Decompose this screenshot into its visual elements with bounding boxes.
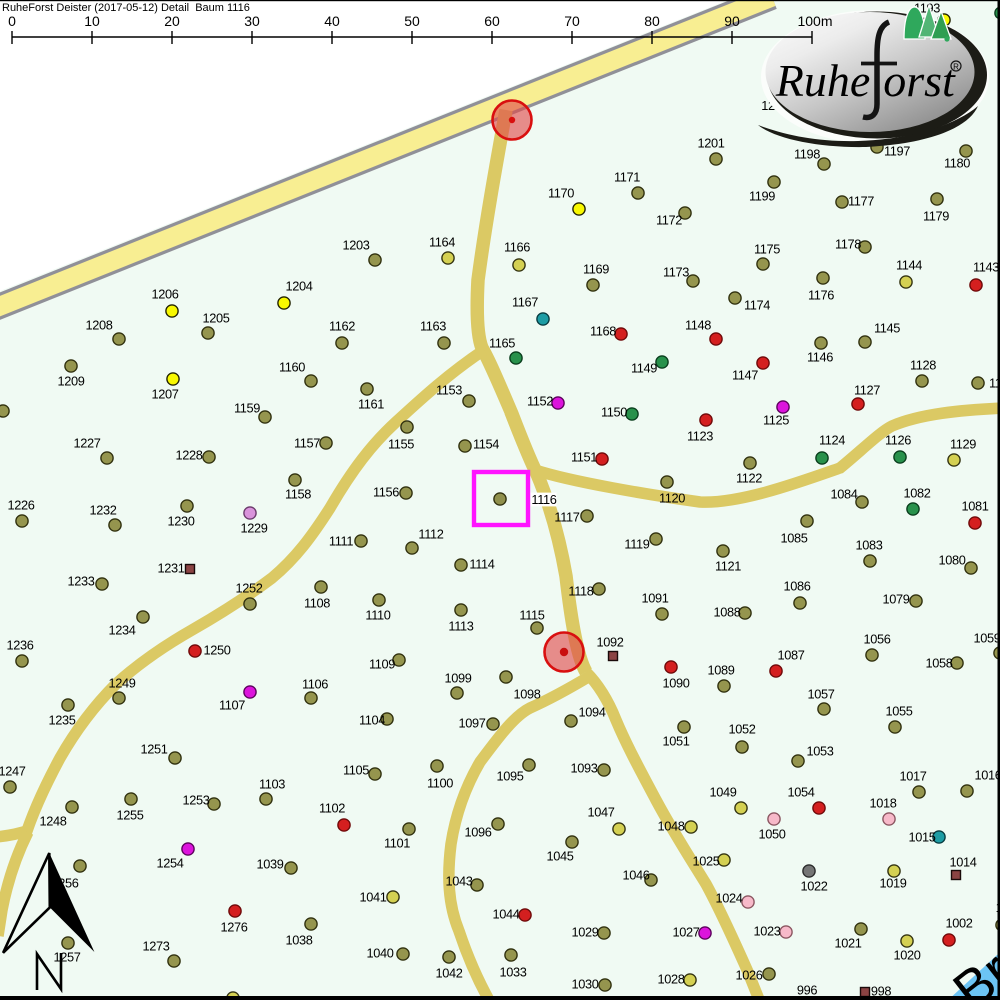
svg-text:1088: 1088	[713, 605, 740, 620]
svg-text:1180: 1180	[944, 156, 970, 171]
svg-text:1226: 1226	[7, 498, 34, 513]
svg-text:1146: 1146	[807, 350, 833, 365]
svg-text:1042: 1042	[435, 966, 462, 981]
svg-text:1055: 1055	[885, 704, 912, 719]
svg-text:1030: 1030	[571, 977, 598, 992]
svg-text:1018: 1018	[869, 796, 896, 811]
svg-text:1028: 1028	[657, 972, 684, 987]
svg-text:1155: 1155	[388, 437, 414, 452]
svg-text:1173: 1173	[663, 265, 689, 280]
svg-text:1097: 1097	[458, 716, 485, 731]
svg-text:30: 30	[244, 13, 260, 29]
svg-text:1015: 1015	[908, 830, 935, 845]
svg-text:Ruhe: Ruhe	[775, 55, 871, 106]
svg-text:60: 60	[484, 13, 500, 29]
svg-text:1087: 1087	[777, 648, 804, 663]
svg-text:1235: 1235	[48, 713, 75, 728]
svg-text:1056: 1056	[863, 632, 890, 647]
svg-text:1041: 1041	[359, 890, 386, 905]
svg-text:1120: 1120	[659, 491, 685, 506]
svg-text:1160: 1160	[279, 360, 305, 375]
svg-text:1166: 1166	[504, 240, 530, 255]
svg-text:1179: 1179	[923, 209, 949, 224]
svg-text:70: 70	[564, 13, 580, 29]
svg-text:1144: 1144	[896, 258, 922, 273]
svg-text:1252: 1252	[235, 581, 262, 596]
svg-text:1148: 1148	[685, 318, 711, 333]
svg-text:1021: 1021	[834, 936, 861, 951]
svg-text:1051: 1051	[662, 734, 689, 749]
svg-text:1201: 1201	[697, 136, 724, 151]
svg-text:R: R	[953, 63, 959, 72]
svg-text:1026: 1026	[735, 968, 762, 983]
svg-text:1159: 1159	[234, 401, 260, 416]
svg-text:1124: 1124	[819, 433, 845, 448]
svg-text:1125: 1125	[763, 413, 789, 428]
svg-text:1253: 1253	[182, 793, 209, 808]
svg-text:1089: 1089	[707, 663, 734, 678]
svg-text:1115: 1115	[519, 608, 544, 623]
svg-text:1112: 1112	[418, 527, 443, 542]
svg-text:1198: 1198	[794, 147, 820, 162]
svg-text:1043: 1043	[445, 874, 472, 889]
svg-text:1103: 1103	[259, 777, 285, 792]
svg-text:1204: 1204	[285, 279, 312, 294]
svg-text:1033: 1033	[499, 965, 526, 980]
svg-text:1081: 1081	[961, 499, 988, 514]
svg-text:1227: 1227	[73, 436, 100, 451]
svg-text:90: 90	[724, 13, 740, 29]
svg-text:1158: 1158	[285, 487, 311, 502]
svg-text:1209: 1209	[57, 374, 84, 389]
svg-text:1248: 1248	[39, 814, 66, 829]
svg-text:1092: 1092	[596, 635, 623, 650]
svg-text:1027: 1027	[672, 925, 699, 940]
svg-text:1019: 1019	[879, 876, 906, 891]
svg-text:1109: 1109	[369, 657, 395, 672]
svg-text:1127: 1127	[854, 383, 880, 398]
svg-text:1161: 1161	[358, 397, 384, 412]
svg-text:1050: 1050	[758, 827, 785, 842]
svg-text:1094: 1094	[578, 705, 605, 720]
svg-text:100m: 100m	[797, 13, 832, 29]
svg-text:1151: 1151	[571, 450, 597, 465]
svg-text:1108: 1108	[304, 596, 330, 611]
svg-text:1236: 1236	[6, 638, 33, 653]
svg-text:996: 996	[797, 983, 818, 998]
svg-text:1167: 1167	[512, 295, 538, 310]
svg-text:1118: 1118	[568, 584, 593, 599]
svg-text:1096: 1096	[464, 825, 491, 840]
svg-text:1128: 1128	[910, 358, 936, 373]
svg-text:1052: 1052	[728, 722, 755, 737]
svg-text:1143: 1143	[973, 260, 999, 275]
svg-text:1154: 1154	[473, 437, 499, 452]
svg-text:1082: 1082	[903, 486, 930, 501]
svg-text:1040: 1040	[366, 946, 393, 961]
svg-text:1104: 1104	[359, 713, 385, 728]
svg-text:1045: 1045	[546, 849, 573, 864]
svg-text:1046: 1046	[622, 868, 649, 883]
svg-text:1170: 1170	[548, 186, 574, 201]
svg-text:1129: 1129	[950, 437, 976, 452]
svg-text:1025: 1025	[692, 854, 719, 869]
svg-text:1086: 1086	[783, 579, 810, 594]
svg-text:1206: 1206	[151, 287, 178, 302]
svg-text:1099: 1099	[444, 671, 471, 686]
svg-text:1157: 1157	[294, 436, 320, 451]
svg-text:1152: 1152	[527, 394, 553, 409]
svg-text:1177: 1177	[848, 194, 874, 209]
svg-text:1114: 1114	[469, 557, 494, 572]
svg-text:1058: 1058	[925, 656, 952, 671]
svg-text:1101: 1101	[384, 836, 410, 851]
svg-text:1020: 1020	[893, 948, 920, 963]
svg-text:1197: 1197	[884, 144, 910, 159]
svg-text:1199: 1199	[749, 189, 775, 204]
svg-text:1165: 1165	[489, 336, 515, 351]
svg-text:1049: 1049	[709, 785, 736, 800]
svg-text:1090: 1090	[662, 676, 689, 691]
svg-text:1176: 1176	[808, 288, 834, 303]
svg-text:1172: 1172	[656, 213, 682, 228]
svg-text:1234: 1234	[108, 623, 135, 638]
svg-text:1231: 1231	[157, 561, 184, 576]
svg-text:1084: 1084	[830, 487, 857, 502]
svg-text:1230: 1230	[167, 514, 194, 529]
svg-text:1203: 1203	[342, 238, 369, 253]
svg-text:40: 40	[324, 13, 340, 29]
svg-text:1229: 1229	[240, 521, 267, 536]
svg-text:1121: 1121	[715, 559, 741, 574]
svg-text:1251: 1251	[140, 742, 167, 757]
svg-text:1149: 1149	[631, 361, 657, 376]
svg-text:50: 50	[404, 13, 420, 29]
svg-text:1100: 1100	[427, 776, 453, 791]
svg-text:1145: 1145	[874, 321, 900, 336]
svg-text:1228: 1228	[175, 448, 202, 463]
svg-text:1057: 1057	[807, 687, 834, 702]
svg-text:1205: 1205	[202, 311, 229, 326]
svg-text:1147: 1147	[732, 368, 758, 383]
svg-text:1168: 1168	[590, 324, 616, 339]
svg-text:1107: 1107	[219, 698, 245, 713]
svg-text:1014: 1014	[949, 855, 976, 870]
svg-text:RuheForst Deister (2017-05-12): RuheForst Deister (2017-05-12) Detail Ba…	[2, 2, 250, 14]
svg-text:1098: 1098	[513, 687, 540, 702]
svg-text:1153: 1153	[436, 383, 462, 398]
svg-text:1178: 1178	[835, 237, 861, 252]
svg-text:1255: 1255	[116, 808, 143, 823]
svg-text:1102: 1102	[319, 801, 345, 816]
svg-text:80: 80	[644, 13, 660, 29]
svg-text:10: 10	[84, 13, 100, 29]
svg-text:1110: 1110	[365, 608, 390, 623]
svg-text:1156: 1156	[373, 485, 399, 500]
svg-text:0: 0	[8, 13, 16, 29]
svg-text:1091: 1091	[641, 591, 668, 606]
svg-text:1123: 1123	[687, 429, 713, 444]
svg-text:1250: 1250	[203, 643, 230, 658]
svg-text:1023: 1023	[753, 924, 780, 939]
svg-text:1126: 1126	[885, 433, 911, 448]
svg-text:1017: 1017	[899, 769, 926, 784]
svg-text:1016: 1016	[974, 768, 1000, 783]
svg-text:1080: 1080	[938, 553, 965, 568]
svg-text:1039: 1039	[256, 857, 283, 872]
svg-text:1273: 1273	[142, 939, 169, 954]
svg-text:1029: 1029	[571, 925, 598, 940]
svg-text:1174: 1174	[744, 298, 770, 313]
svg-text:1119: 1119	[624, 537, 649, 552]
svg-text:1095: 1095	[496, 769, 523, 784]
svg-text:1022: 1022	[800, 879, 827, 894]
svg-text:1054: 1054	[787, 785, 814, 800]
svg-text:1164: 1164	[429, 235, 455, 250]
svg-text:1162: 1162	[329, 319, 355, 334]
svg-text:1232: 1232	[89, 503, 116, 518]
svg-text:1208: 1208	[85, 318, 112, 333]
svg-text:1093: 1093	[570, 761, 597, 776]
svg-text:1044: 1044	[492, 907, 519, 922]
svg-text:1169: 1169	[583, 262, 609, 277]
svg-text:1122: 1122	[736, 471, 762, 486]
svg-text:20: 20	[164, 13, 180, 29]
svg-text:1083: 1083	[855, 538, 882, 553]
svg-text:1048: 1048	[657, 819, 684, 834]
svg-text:1053: 1053	[806, 744, 833, 759]
svg-text:1085: 1085	[780, 531, 807, 546]
svg-text:1171: 1171	[614, 170, 640, 185]
svg-text:1249: 1249	[108, 676, 135, 691]
svg-text:1059: 1059	[973, 631, 1000, 646]
svg-text:1247: 1247	[0, 764, 26, 779]
svg-text:1002: 1002	[945, 916, 972, 931]
svg-text:1233: 1233	[67, 574, 94, 589]
svg-text:1175: 1175	[754, 242, 780, 257]
svg-text:1113: 1113	[448, 619, 473, 634]
svg-text:1105: 1105	[343, 763, 369, 778]
svg-text:1254: 1254	[156, 856, 183, 871]
svg-text:1116: 1116	[531, 492, 556, 507]
svg-text:1047: 1047	[587, 805, 614, 820]
svg-text:1024: 1024	[715, 891, 742, 906]
svg-text:1038: 1038	[285, 933, 312, 948]
svg-text:1106: 1106	[302, 677, 328, 692]
svg-text:1079: 1079	[882, 592, 909, 607]
svg-text:1207: 1207	[151, 387, 178, 402]
svg-text:1257: 1257	[53, 950, 80, 965]
svg-text:1163: 1163	[420, 319, 446, 334]
svg-text:1150: 1150	[601, 405, 627, 420]
svg-text:1117: 1117	[554, 510, 579, 525]
svg-text:1111: 1111	[329, 534, 353, 549]
svg-text:1276: 1276	[220, 920, 247, 935]
